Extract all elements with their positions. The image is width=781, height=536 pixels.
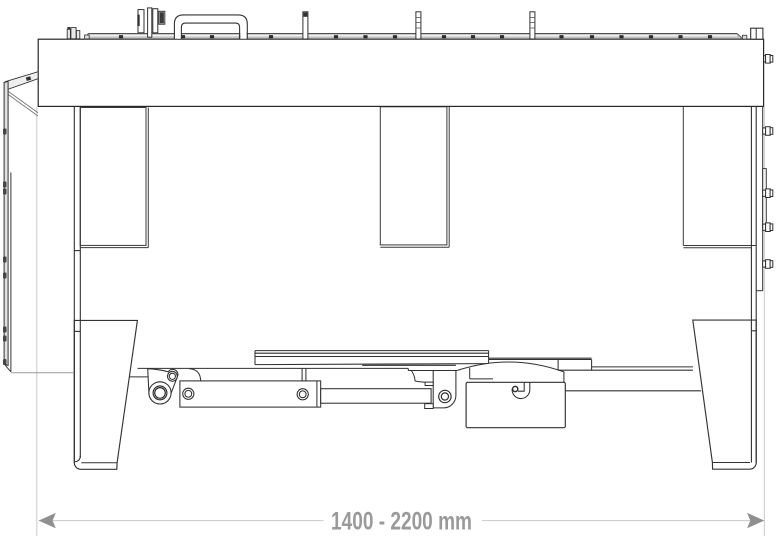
svg-text:1400 - 2200 mm: 1400 - 2200 mm (331, 507, 472, 535)
